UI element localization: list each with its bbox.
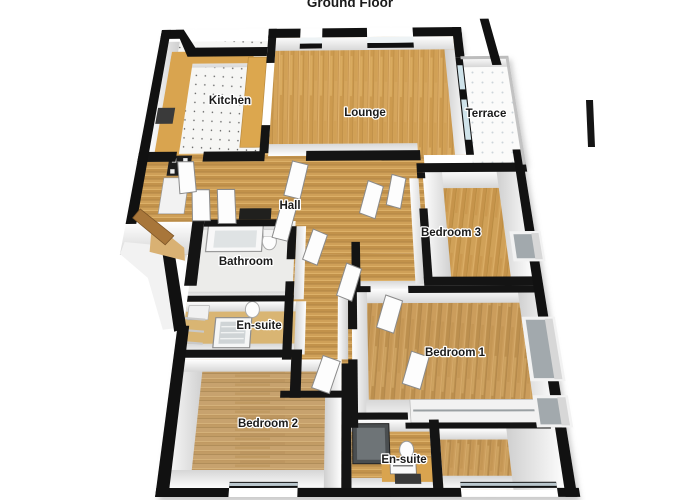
svg-text:En-suite: En-suite (381, 454, 426, 466)
svg-text:Lounge: Lounge (344, 107, 386, 119)
svg-text:Ground Floor: Ground Floor (307, 0, 394, 10)
svg-text:Bedroom 1: Bedroom 1 (425, 347, 486, 359)
svg-text:Terrace: Terrace (466, 108, 507, 120)
svg-text:Bedroom 2: Bedroom 2 (238, 418, 298, 430)
svg-text:Hall: Hall (279, 200, 300, 212)
svg-text:Bedroom 3: Bedroom 3 (421, 227, 481, 239)
svg-text:Kitchen: Kitchen (209, 95, 251, 107)
svg-text:En-suite: En-suite (236, 320, 281, 332)
svg-text:Bathroom: Bathroom (219, 256, 273, 268)
